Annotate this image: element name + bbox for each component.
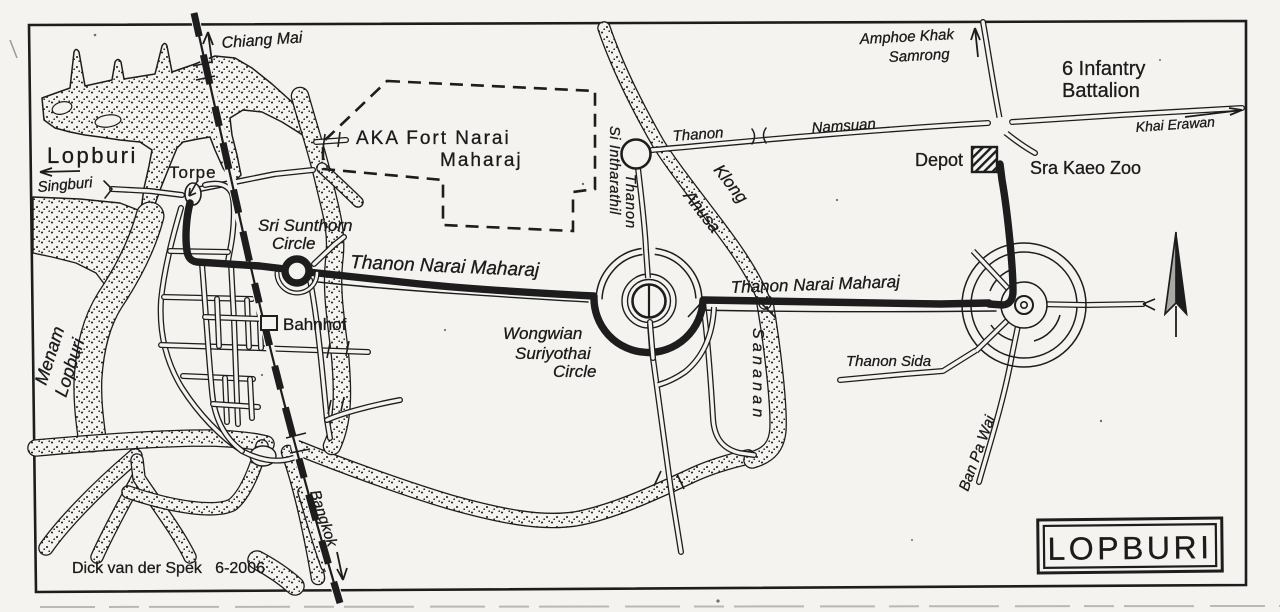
svg-text:Samrong: Samrong [888,46,950,66]
svg-text:Dick van der Spek 6-2006: Dick van der Spek 6-2006 [72,560,265,577]
svg-text:Thanon: Thanon [672,124,724,145]
svg-text:Circle: Circle [553,362,596,381]
svg-text:Sri Sunthorn: Sri Sunthorn [258,216,353,235]
svg-text:Depot: Depot [915,150,963,170]
svg-text:LOPBURI: LOPBURI [1047,529,1212,567]
svg-text:Sananan: Sananan [749,328,766,421]
svg-text:6 Infantry: 6 Infantry [1062,58,1145,80]
svg-text:Thanon Sida: Thanon Sida [846,353,931,370]
svg-text:Si Intharathil: Si Intharathil [606,126,622,215]
svg-text:Maharaj: Maharaj [440,150,523,171]
svg-text:Sra Kaeo Zoo: Sra Kaeo Zoo [1030,158,1141,178]
svg-text:Suriyothai: Suriyothai [515,344,592,363]
svg-text:Wongwian: Wongwian [503,324,582,343]
svg-text:Lopburi: Lopburi [47,143,138,168]
svg-text:Battalion: Battalion [1062,80,1140,102]
svg-text:Bahnhof: Bahnhof [283,315,347,334]
svg-text:Torpe: Torpe [169,163,217,182]
svg-text:Thanon: Thanon [622,174,638,229]
svg-text:Circle: Circle [272,234,315,253]
svg-text:AKA Fort Narai: AKA Fort Narai [356,128,511,149]
